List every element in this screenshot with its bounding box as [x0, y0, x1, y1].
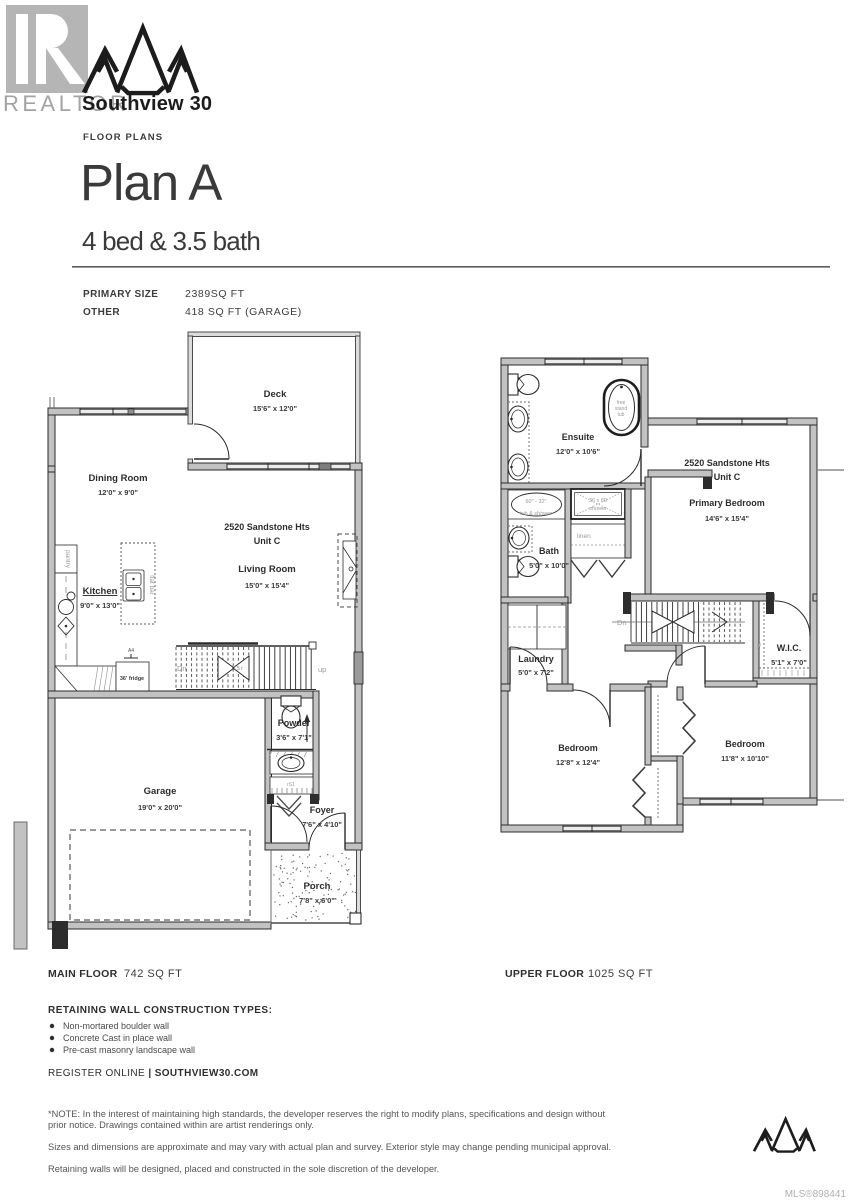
svg-text:tub & shower: tub & shower [520, 511, 552, 517]
svg-text:Unit C: Unit C [714, 472, 741, 482]
svg-text:Garage: Garage [144, 786, 177, 797]
svg-text:12'8" x 12'4": 12'8" x 12'4" [556, 758, 600, 767]
svg-text:*NOTE: In the interest of main: *NOTE: In the interest of maintaining hi… [48, 1109, 606, 1119]
svg-text:19'0" x 20'0": 19'0" x 20'0" [138, 803, 182, 812]
svg-text:pantry: pantry [64, 550, 71, 569]
svg-text:Retaining walls will be design: Retaining walls will be designed, placed… [48, 1164, 439, 1174]
svg-text:1025 SQ FT: 1025 SQ FT [588, 968, 653, 980]
svg-text:rS1: rS1 [287, 782, 295, 788]
svg-text:MAIN FLOOR: MAIN FLOOR [48, 968, 118, 980]
svg-text:36 x 60: 36 x 60 [589, 498, 607, 504]
svg-text:2520 Sandstone Hts: 2520 Sandstone Hts [684, 458, 770, 468]
svg-text:OTHER: OTHER [83, 307, 120, 318]
svg-text:FLOOR PLANS: FLOOR PLANS [83, 132, 163, 143]
svg-text:418 SQ FT (GARAGE): 418 SQ FT (GARAGE) [185, 306, 302, 318]
svg-text:A4: A4 [128, 648, 134, 654]
svg-text:11'8" x 10'10": 11'8" x 10'10" [721, 754, 769, 763]
svg-text:UPPER FLOOR: UPPER FLOOR [505, 968, 584, 980]
svg-text:5 r: 5 r [237, 666, 243, 672]
svg-text:12'0" x 10'6": 12'0" x 10'6" [556, 447, 600, 456]
svg-text:up: up [318, 665, 326, 674]
svg-text:Ensuite: Ensuite [562, 432, 595, 442]
svg-text:15'0" x 15'4": 15'0" x 15'4" [245, 581, 289, 590]
svg-text:prior notice. Drawings contain: prior notice. Drawings contained within … [48, 1120, 314, 1130]
svg-text:Dn: Dn [617, 618, 627, 627]
svg-text:4 bed & 3.5 bath: 4 bed & 3.5 bath [82, 226, 260, 256]
svg-text:5'0" x 7'2": 5'0" x 7'2" [518, 668, 554, 677]
svg-text:tub: tub [618, 412, 625, 418]
svg-text:Bedroom: Bedroom [558, 743, 598, 753]
svg-text:Kitchen: Kitchen [83, 586, 118, 597]
svg-text:Living Room: Living Room [238, 564, 296, 575]
svg-text:rSs: rSs [755, 641, 761, 649]
svg-text:Dn: Dn [177, 664, 187, 673]
svg-text:Sizes and dimensions are appro: Sizes and dimensions are approximate and… [48, 1142, 611, 1152]
svg-text:5'1" x 7'0": 5'1" x 7'0" [771, 658, 807, 667]
svg-text:7'8" x 6'0": 7'8" x 6'0" [299, 896, 335, 905]
svg-text:Bath: Bath [539, 546, 559, 556]
svg-text:15'6" x 12'0": 15'6" x 12'0" [253, 404, 297, 413]
svg-text:shower: shower [589, 506, 607, 512]
svg-text:Dining Room: Dining Room [88, 473, 147, 484]
svg-text:Foyer: Foyer [310, 805, 335, 815]
svg-text:PRIMARY SIZE: PRIMARY SIZE [83, 289, 158, 300]
svg-text:linen: linen [577, 533, 591, 540]
svg-text:Laundry: Laundry [518, 654, 554, 664]
svg-text:9'0" x 13'0": 9'0" x 13'0" [80, 601, 120, 610]
svg-text:Bedroom: Bedroom [725, 739, 765, 749]
svg-text:Pre-cast masonry landscape wal: Pre-cast masonry landscape wall [63, 1045, 195, 1055]
svg-text:2520 Sandstone Hts: 2520 Sandstone Hts [224, 522, 310, 532]
svg-text:12'0" x 9'0": 12'0" x 9'0" [98, 488, 138, 497]
svg-text:Non-mortared boulder wall: Non-mortared boulder wall [63, 1021, 169, 1031]
svg-text:742 SQ FT: 742 SQ FT [124, 968, 182, 980]
svg-text:14'6" x 15'4": 14'6" x 15'4" [705, 514, 749, 523]
svg-text:flat bar: flat bar [148, 575, 155, 596]
svg-text:W.I.C.: W.I.C. [777, 643, 802, 653]
svg-text:Southview 30: Southview 30 [82, 93, 212, 115]
svg-text:Primary Bedroom: Primary Bedroom [689, 498, 765, 508]
svg-text:Deck: Deck [264, 389, 287, 400]
svg-text:Unit C: Unit C [254, 536, 281, 546]
svg-text:RETAINING WALL CONSTRUCTION TY: RETAINING WALL CONSTRUCTION TYPES: [48, 1005, 272, 1016]
svg-text:36' fridge: 36' fridge [120, 676, 144, 682]
svg-text:MLS®898441: MLS®898441 [785, 1189, 847, 1200]
svg-text:2389SQ FT: 2389SQ FT [185, 288, 245, 300]
svg-text:Plan A: Plan A [80, 154, 222, 211]
svg-text:60" - 32": 60" - 32" [525, 499, 546, 505]
svg-text:REGISTER ONLINE | SOUTHVIEW30.: REGISTER ONLINE | SOUTHVIEW30.COM [48, 1068, 258, 1079]
svg-text:5'0" x 10'0": 5'0" x 10'0" [529, 561, 569, 570]
svg-text:Concrete Cast in place wall: Concrete Cast in place wall [63, 1033, 172, 1043]
svg-text:Porch: Porch [304, 881, 331, 892]
